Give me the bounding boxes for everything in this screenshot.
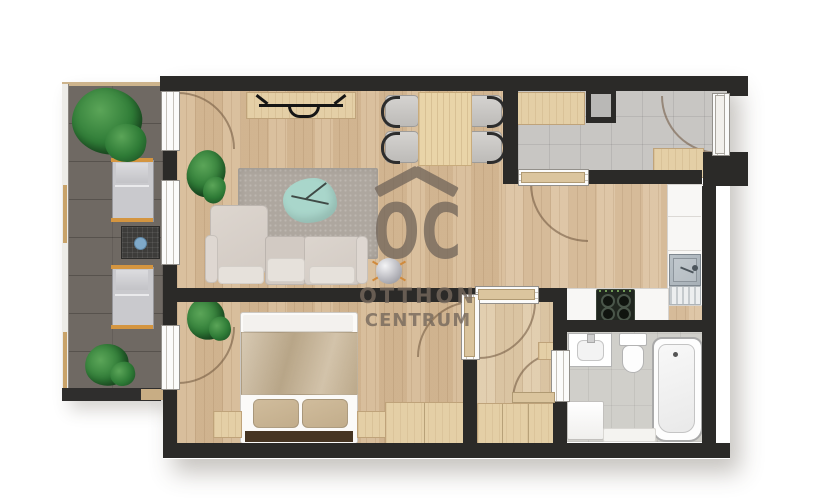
lounger-frame-bar: [111, 265, 153, 269]
sink-drainer: [669, 286, 701, 305]
washbasin-bowl: [577, 340, 604, 361]
lounger-frame-bar: [111, 218, 153, 222]
dining-chair: [385, 95, 419, 127]
bed-top-sheet: [243, 315, 353, 332]
bathtub: [652, 337, 703, 442]
bathroom-door-leaf: [512, 392, 555, 403]
wall-right-step: [703, 152, 748, 186]
railing-wood-slat: [63, 332, 67, 388]
floor-plan: OC OTTHON CENTRUM: [0, 0, 829, 500]
bathtub-drain: [673, 352, 678, 357]
utility-shaft-inner: [591, 94, 611, 117]
sofa-armrest: [205, 235, 218, 283]
cooktop-burner: [617, 307, 631, 321]
sink-faucet: [692, 265, 698, 271]
sofa-cushion: [218, 266, 264, 284]
counter-seam: [668, 250, 701, 251]
bed-headboard: [245, 431, 353, 442]
washing-machine: [567, 401, 604, 440]
entry-bench-cabinet: [513, 92, 585, 125]
kitchen-sink: [669, 254, 701, 286]
washbasin: [568, 333, 612, 367]
toilet-bowl: [622, 345, 644, 373]
corner-sofa: [204, 204, 366, 285]
lamp-shade: [376, 258, 402, 284]
bed-pillow: [302, 399, 348, 428]
wall-hall-bath-bottom: [553, 398, 567, 443]
coffee-table-branch-decor: [305, 182, 327, 200]
balcony-door-living: [161, 91, 180, 151]
sofa-chaise: [210, 205, 268, 273]
lounger-headrest: [116, 163, 148, 183]
nightstand: [357, 411, 386, 438]
balcony-side-table: [121, 226, 160, 259]
sofa-cushion: [309, 266, 355, 284]
nightstand: [213, 411, 242, 438]
entry-kitchen-door-leaf: [521, 172, 585, 183]
tv-console: [246, 92, 356, 119]
balcony-door-bedroom: [161, 325, 180, 390]
sun-lounger: [112, 160, 154, 222]
double-bed: [240, 312, 358, 444]
railing-wood-slat: [63, 185, 67, 243]
bedroom-wardrobe: [385, 402, 464, 444]
living-room-window: [161, 180, 180, 265]
front-door-leaf: [715, 95, 725, 154]
floor-lamp: [364, 250, 414, 290]
lounger-headrest: [116, 270, 148, 290]
toilet: [619, 333, 646, 373]
living-hall-door-leaf: [478, 289, 535, 300]
lounger-cushion-fold: [115, 294, 149, 296]
wall-dining-entry: [503, 90, 518, 172]
wall-right: [702, 186, 716, 443]
balcony-parapet-wood: [141, 389, 163, 400]
sun-lounger: [112, 267, 154, 329]
cooktop-burner: [617, 294, 631, 308]
wall-bedroom-hall-bottom: [463, 356, 477, 443]
dining-chair: [468, 95, 502, 127]
coffee-cup: [134, 237, 147, 250]
wall-bathroom-top: [553, 320, 716, 332]
cooktop-burner: [601, 307, 615, 321]
cooktop-burner: [601, 294, 615, 308]
wall-right-top-corner: [727, 76, 748, 96]
bathtub-basin: [658, 344, 695, 433]
cooktop-knobs: [599, 290, 632, 292]
balcony-railing-top: [62, 82, 163, 86]
lounger-cushion-fold: [115, 185, 149, 187]
lounger-frame-bar: [111, 325, 153, 329]
wall-bottom: [163, 443, 730, 458]
washbasin-tap: [587, 334, 595, 343]
hall-wardrobe: [477, 403, 555, 444]
bath-mat: [603, 428, 656, 442]
dining-chair: [468, 131, 502, 163]
sofa-cushion: [267, 258, 305, 282]
dining-chair: [385, 131, 419, 163]
bed-blanket: [241, 332, 358, 395]
tv-icon-bracket: [288, 106, 320, 118]
counter-seam: [668, 216, 701, 217]
bedroom-door-leaf: [464, 297, 475, 357]
wall-top: [160, 76, 748, 91]
wall-entry-south-b: [585, 170, 702, 184]
dining-table: [418, 92, 472, 166]
wall-living-bedroom: [163, 288, 477, 302]
bed-pillow: [253, 399, 299, 428]
